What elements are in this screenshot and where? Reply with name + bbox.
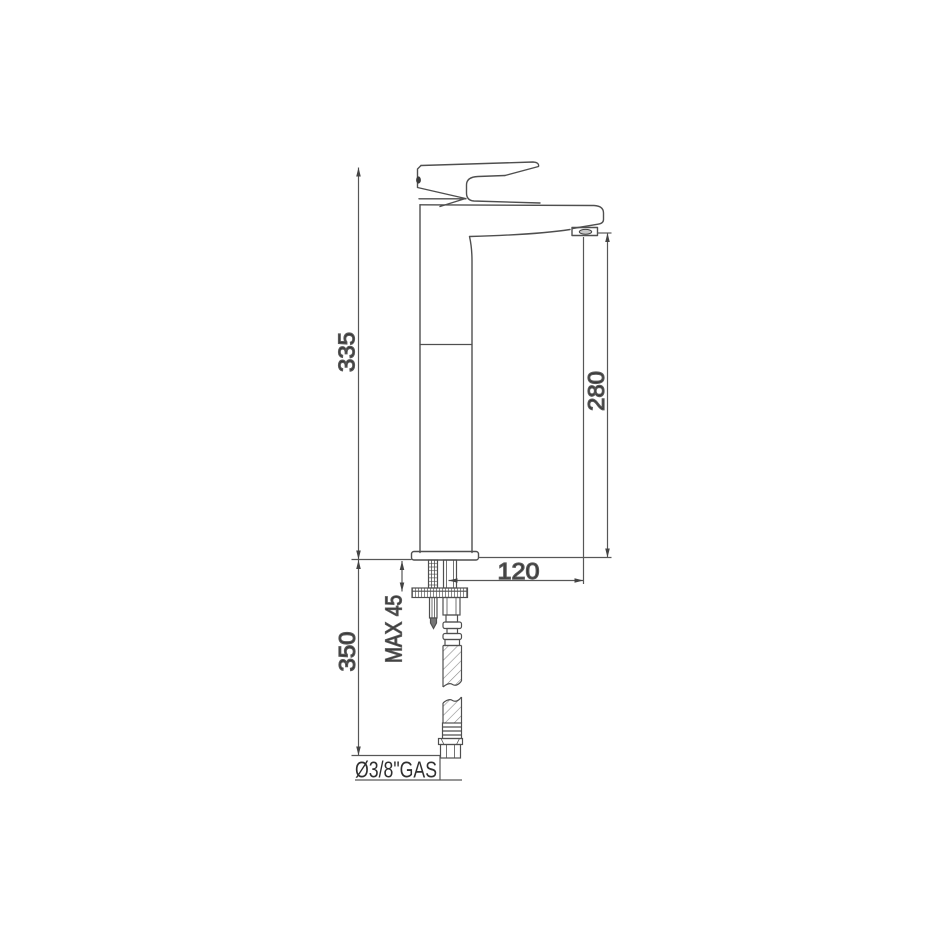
handle-cap bbox=[467, 176, 541, 204]
spout-arm bbox=[420, 205, 604, 229]
mounting-washer bbox=[412, 588, 468, 598]
technical-drawing-page: 335 350 280 120 MAX 45 Ø3/8"GAS bbox=[0, 0, 950, 950]
arrowhead-right bbox=[575, 578, 584, 583]
dim-label-max45: MAX 45 bbox=[381, 595, 407, 663]
hose-fitting bbox=[443, 598, 460, 616]
arrowhead-up bbox=[356, 168, 361, 177]
dimension-outlet-height: 280 bbox=[479, 233, 612, 558]
below-deck-assembly bbox=[412, 560, 468, 758]
dim-label-335: 335 bbox=[334, 332, 360, 372]
fitting-ring-2 bbox=[443, 634, 462, 640]
dimension-spout-reach: 120 bbox=[449, 237, 584, 584]
fitting-ring-1 bbox=[443, 622, 462, 629]
connection-label: Ø3/8"GAS bbox=[355, 756, 462, 783]
handle-lever bbox=[421, 162, 539, 176]
supply-pipe bbox=[444, 560, 457, 588]
hose-crimp bbox=[445, 640, 460, 646]
stud-tip bbox=[431, 618, 437, 629]
dimension-max-thickness: MAX 45 bbox=[381, 561, 407, 663]
faucet-dimension-drawing: 335 350 280 120 MAX 45 Ø3/8"GAS bbox=[0, 0, 950, 950]
faucet-outline bbox=[412, 162, 604, 560]
base-plate bbox=[412, 552, 479, 561]
arrowhead-down bbox=[400, 583, 405, 592]
connection-label-text: Ø3/8"GAS bbox=[355, 757, 437, 783]
arrowhead-down bbox=[605, 549, 610, 558]
handle-screw-dot bbox=[416, 176, 421, 183]
arrowhead-up bbox=[605, 233, 610, 242]
handle-pivot bbox=[418, 166, 466, 207]
dim-label-350: 350 bbox=[334, 632, 360, 672]
threaded-stud bbox=[429, 560, 438, 588]
fitting-waist bbox=[446, 615, 458, 622]
stud-lower bbox=[430, 598, 438, 619]
arrowhead-up bbox=[400, 561, 405, 570]
spout-underside bbox=[470, 230, 571, 553]
aerator-outlet bbox=[579, 229, 591, 234]
arrowhead-left bbox=[449, 578, 458, 583]
dim-label-120: 120 bbox=[498, 558, 540, 584]
arrowhead-down bbox=[356, 747, 361, 756]
arrowhead-down bbox=[356, 551, 361, 560]
arrowhead-up bbox=[356, 560, 361, 569]
hose-upper-segment bbox=[443, 646, 462, 688]
dim-label-280: 280 bbox=[583, 371, 609, 411]
fitting-neck bbox=[447, 629, 458, 634]
hex-nut bbox=[439, 739, 463, 759]
dimension-total-height: 335 bbox=[334, 168, 361, 560]
hose-lower-segment bbox=[443, 697, 462, 723]
